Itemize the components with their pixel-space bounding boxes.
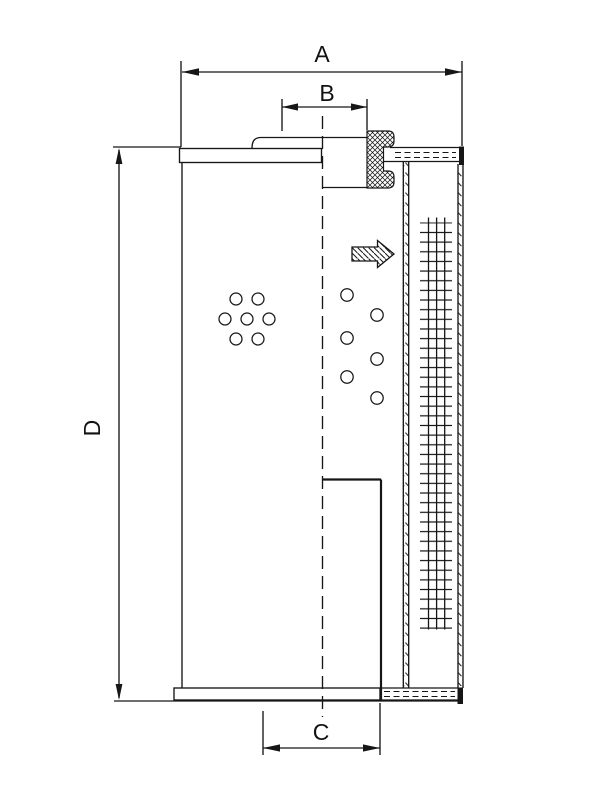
drain-holes-right: [341, 289, 383, 404]
dimension-d: [113, 147, 463, 701]
hole: [341, 371, 353, 383]
hole: [341, 289, 353, 301]
hole: [263, 313, 275, 325]
top-spigot: [252, 138, 368, 149]
top-cap-rim: [459, 147, 464, 166]
hole: [241, 313, 253, 325]
dim-d-arrow-top: [116, 148, 123, 164]
hole: [230, 333, 242, 345]
drain-holes-left: [219, 293, 275, 345]
section-view: [323, 131, 465, 704]
dimension-c-label: C: [313, 719, 330, 745]
dimension-b-label: B: [319, 80, 334, 106]
flow-direction-arrow-icon: [352, 241, 394, 268]
dim-b-arrow-left: [282, 103, 298, 110]
perforated-inner-tube: [403, 162, 408, 689]
dimension-a-label: A: [314, 41, 330, 67]
dim-d-arrow-bottom: [116, 684, 123, 700]
hole: [230, 293, 242, 305]
hole: [371, 353, 383, 365]
filter-element-half-section-drawing: A B C D: [0, 0, 612, 792]
top-end-cap-outline: [180, 149, 322, 163]
hole: [252, 333, 264, 345]
hole: [252, 293, 264, 305]
technical-drawing-page: A B C D: [0, 0, 612, 792]
external-view: [174, 116, 383, 717]
hole: [371, 309, 383, 321]
dim-a-arrow-left: [182, 68, 199, 76]
perforated-outer-shell: [458, 164, 463, 688]
dim-a-arrow-right: [445, 68, 462, 76]
filter-media-grid: [420, 218, 452, 630]
hole: [219, 313, 231, 325]
hole: [341, 332, 353, 344]
hole: [371, 392, 383, 404]
dim-c-arrow-left: [263, 744, 280, 751]
dimension-d-label: D: [79, 420, 105, 437]
dim-b-arrow-right: [351, 103, 367, 110]
gasket-seal-crosshatch: [367, 131, 394, 188]
bottom-end-cap-outline: [174, 688, 380, 700]
bottom-cap-rim: [458, 688, 464, 705]
dim-c-arrow-right: [363, 744, 380, 751]
